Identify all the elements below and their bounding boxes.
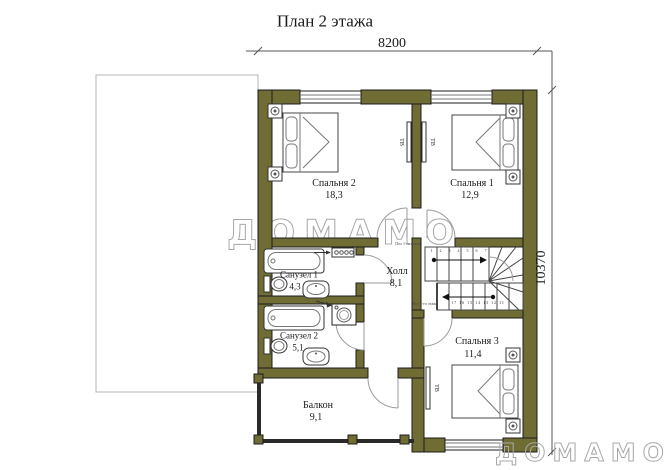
wall-balcony-north-west: [258, 368, 368, 378]
terrace-outline: [96, 75, 258, 392]
floor-plan-drawing: [0, 0, 665, 470]
bathtub-icon: [264, 306, 324, 330]
door-bathroom1: [364, 255, 392, 283]
staircase: [425, 247, 523, 310]
dimension-line-right: [548, 51, 556, 456]
wall-hall-north-east: [455, 238, 523, 247]
bed-icon: [283, 113, 338, 172]
stair-direction-arrows: [432, 257, 495, 301]
wall-stub: [412, 310, 424, 318]
toilet-icon: [264, 338, 287, 354]
door-bedroom1: [427, 210, 455, 238]
wall-bath2-east-b: [356, 350, 364, 368]
wall-stair-west: [412, 238, 421, 318]
window-top-2: [431, 91, 492, 103]
wall-bedroom-divider: [412, 104, 421, 208]
wall-right: [523, 90, 537, 452]
wall-stairs-bedroom3: [452, 310, 523, 318]
door-bedroom2: [377, 208, 407, 238]
watermark-corner: ДОМАМО: [495, 438, 665, 467]
wall-hall-north-west: [272, 238, 378, 247]
wall-bath2-east-a: [356, 304, 364, 322]
dimension-line-top: [246, 47, 552, 55]
wall-balcony-north-east: [398, 368, 424, 378]
sink-icon: [303, 281, 329, 298]
balcony-railing: [254, 374, 414, 444]
window-top-1: [300, 91, 361, 103]
door-balcony: [368, 378, 398, 408]
wall-top-middle: [361, 90, 431, 104]
wall-bath1-east-a: [356, 247, 364, 255]
door-bedroom3: [424, 318, 452, 346]
floor-plan-canvas: ДОМАМО: [0, 0, 665, 470]
wall-bedroom3-west: [412, 318, 424, 452]
bed-icon: [452, 365, 518, 418]
toilet-icon: [264, 276, 287, 292]
door-bathroom2: [336, 322, 364, 350]
bed-icon: [452, 115, 518, 170]
wall-left: [258, 90, 272, 378]
sink-icon: [303, 348, 329, 365]
stair-winder: [489, 247, 523, 310]
